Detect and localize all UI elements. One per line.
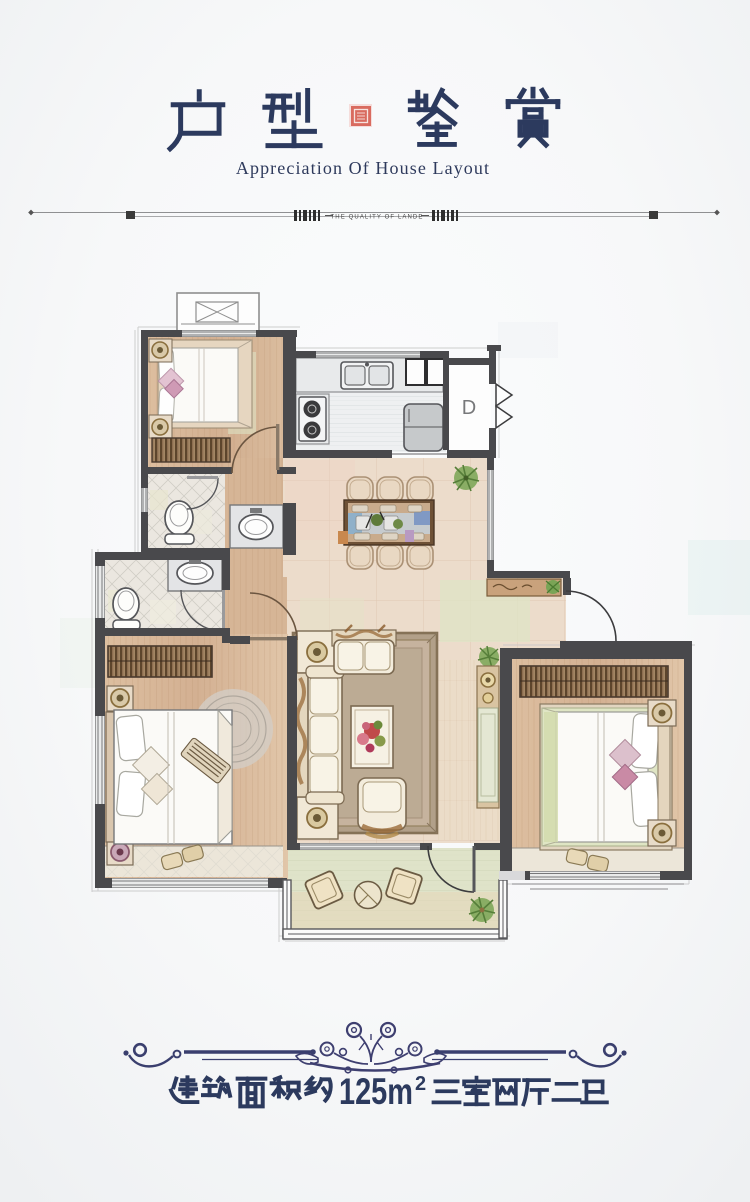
- svg-text:D: D: [462, 397, 476, 419]
- svg-text:125m: 125m: [339, 1071, 413, 1112]
- svg-text:THE QUALITY OF LANDE: THE QUALITY OF LANDE: [331, 215, 424, 221]
- svg-text:Appreciation Of House Layout: Appreciation Of House Layout: [236, 158, 490, 178]
- svg-text:2: 2: [415, 1073, 426, 1095]
